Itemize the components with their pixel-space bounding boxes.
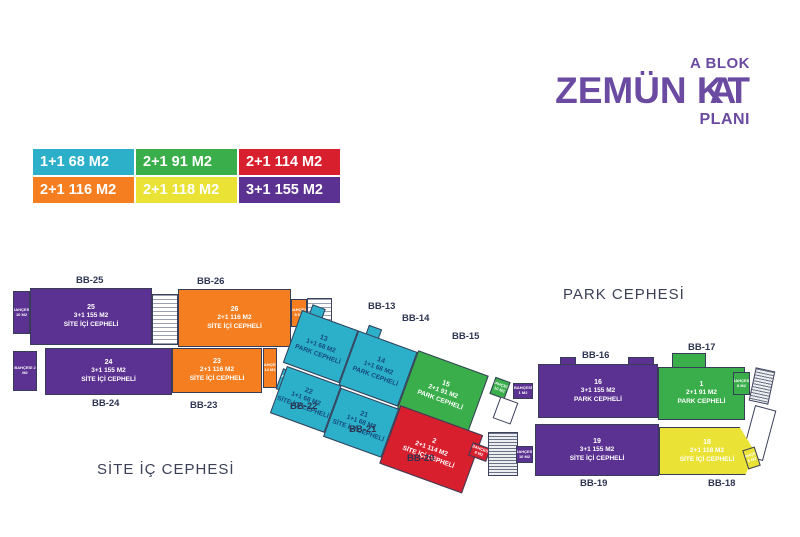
unit-bb-24[interactable]: 24 3+1 155 M2 SİTE İÇİ CEPHELİ xyxy=(45,348,172,395)
title-floor-name: ZEMÜN KAT xyxy=(555,72,750,111)
unit-label-bb-19: BB-19 xyxy=(580,478,607,489)
stairwell xyxy=(749,367,776,404)
legend-item-2plus1-118: 2+1 118 M2 xyxy=(136,177,237,203)
garden-tag-bb17: BAHÇESİ 8 M2 xyxy=(733,372,750,395)
page-title: A BLOK ZEMÜN KAT PLANI xyxy=(555,55,750,129)
unit-number: 25 xyxy=(87,303,95,312)
legend: 1+1 68 M2 2+1 91 M2 2+1 114 M2 2+1 116 M… xyxy=(33,149,340,203)
title-part: T xyxy=(727,70,750,111)
unit-number: 23 xyxy=(213,357,221,366)
legend-item-1plus1-68: 1+1 68 M2 xyxy=(33,149,134,175)
unit-facade: SİTE İÇİ CEPHELİ xyxy=(680,456,735,465)
unit-bb-23[interactable]: 23 2+1 116 M2 SİTE İÇİ CEPHELİ xyxy=(172,348,262,393)
garden-tag-label: BAHÇESİ 8 M2 xyxy=(733,379,750,389)
unit-bb-18[interactable]: 18 2+1 118 M2 SİTE İÇİ CEPHELİ xyxy=(659,427,755,475)
legend-label: 2+1 114 M2 xyxy=(246,154,322,170)
legend-label: 2+1 118 M2 xyxy=(143,182,219,198)
unit-number: 16 xyxy=(594,378,602,387)
legend-label: 2+1 91 M2 xyxy=(143,154,212,170)
unit-label-bb-26: BB-26 xyxy=(197,276,224,287)
legend-item-3plus1-155: 3+1 155 M2 xyxy=(239,177,340,203)
unit-bb-16[interactable]: 16 3+1 155 M2 PARK CEPHELİ xyxy=(538,364,658,418)
unit-size: 2+1 116 M2 xyxy=(200,366,234,375)
unit-label-bb-14: BB-14 xyxy=(402,313,429,324)
unit-size: 2+1 91 M2 xyxy=(686,389,717,398)
stair-landing xyxy=(493,396,519,424)
park-facade-caption: PARK CEPHESİ xyxy=(563,286,685,303)
legend-label: 1+1 68 M2 xyxy=(40,154,109,170)
unit-label-bb-25: BB-25 xyxy=(76,275,103,286)
unit-label-bb-21: BB-21 xyxy=(349,424,376,435)
title-plan-word: PLANI xyxy=(555,111,750,129)
unit-size: 2+1 116 M2 xyxy=(217,314,251,323)
unit-size: 3+1 155 M2 xyxy=(91,367,126,376)
unit-bb-25[interactable]: 25 3+1 155 M2 SİTE İÇİ CEPHELİ xyxy=(30,288,152,345)
stairwell xyxy=(488,432,518,476)
garden-tag-label: BAHÇESİ 10 M2 xyxy=(490,380,510,395)
unit-label-bb-15: BB-15 xyxy=(452,331,479,342)
legend-item-2plus1-116: 2+1 116 M2 xyxy=(33,177,134,203)
floor-plan-page: 1+1 68 M2 2+1 91 M2 2+1 114 M2 2+1 116 M… xyxy=(0,0,800,537)
unit-label-bb-23: BB-23 xyxy=(190,400,217,411)
unit-bb-17[interactable]: 1 2+1 91 M2 PARK CEPHELİ xyxy=(658,367,745,420)
unit-facade: SİTE İÇİ CEPHELİ xyxy=(190,375,245,384)
garden-tag-label: BAHÇESİ 10 M2 xyxy=(13,308,30,318)
unit-facade: SİTE İÇİ CEPHELİ xyxy=(570,455,625,464)
unit-label-bb-16: BB-16 xyxy=(582,350,609,361)
unit-facade: SİTE İÇİ CEPHELİ xyxy=(207,323,262,332)
garden-tag-bb16: BAHÇESİ 1 M2 xyxy=(513,383,533,399)
unit-label-bb-24: BB-24 xyxy=(92,398,119,409)
unit-label-bb-20: BB-20 xyxy=(407,453,434,464)
unit-label-bb-18: BB-18 xyxy=(708,478,735,489)
unit-bb-26[interactable]: 26 2+1 116 M2 SİTE İÇİ CEPHELİ xyxy=(178,289,291,347)
unit-bb-19[interactable]: 19 3+1 155 M2 SİTE İÇİ CEPHELİ xyxy=(535,424,659,476)
unit-number: 1 xyxy=(700,380,704,389)
unit-number: 18 xyxy=(703,438,711,447)
stairwell xyxy=(152,294,178,345)
balcony-tab xyxy=(672,353,706,368)
unit-number: 26 xyxy=(231,305,239,314)
unit-label-bb-17: BB-17 xyxy=(688,342,715,353)
unit-size: 3+1 155 M2 xyxy=(580,446,615,455)
unit-facade: PARK CEPHELİ xyxy=(678,398,726,407)
garden-tag-bb25: BAHÇESİ 10 M2 xyxy=(13,291,30,334)
legend-item-2plus1-114: 2+1 114 M2 xyxy=(239,149,340,175)
unit-size: 2+1 118 M2 xyxy=(690,447,724,456)
garden-tag-label: BAHÇESİ 14 M2 xyxy=(263,363,277,373)
legend-label: 3+1 155 M2 xyxy=(246,182,323,198)
unit-facade: SİTE İÇİ CEPHELİ xyxy=(81,376,136,385)
legend-item-2plus1-91: 2+1 91 M2 xyxy=(136,149,237,175)
unit-label-bb-13: BB-13 xyxy=(368,301,395,312)
unit-label-bb-22: BB-22 xyxy=(290,401,317,412)
garden-tag-label: BAHÇESİ 10 M2 xyxy=(516,450,533,460)
garden-tag-label: BAHÇESİ 2 M2 xyxy=(14,366,36,376)
unit-number: 19 xyxy=(593,437,601,446)
legend-label: 2+1 116 M2 xyxy=(40,182,116,198)
garden-tag-bb24: BAHÇESİ 2 M2 xyxy=(13,351,37,391)
unit-number: 24 xyxy=(105,358,113,367)
unit-size: 3+1 155 M2 xyxy=(581,387,616,396)
title-part: ZEMÜN K xyxy=(555,70,724,111)
unit-size: 3+1 155 M2 xyxy=(74,312,109,321)
garden-tag-bb19: BAHÇESİ 10 M2 xyxy=(516,446,533,463)
garden-tag-bb23: BAHÇESİ 14 M2 xyxy=(263,348,277,388)
unit-facade: PARK CEPHELİ xyxy=(574,396,622,405)
garden-tag-label: BAHÇESİ 1 M2 xyxy=(514,386,532,396)
unit-facade: SİTE İÇİ CEPHELİ xyxy=(64,321,119,330)
site-facade-caption: SİTE İÇ CEPHESİ xyxy=(97,461,235,478)
